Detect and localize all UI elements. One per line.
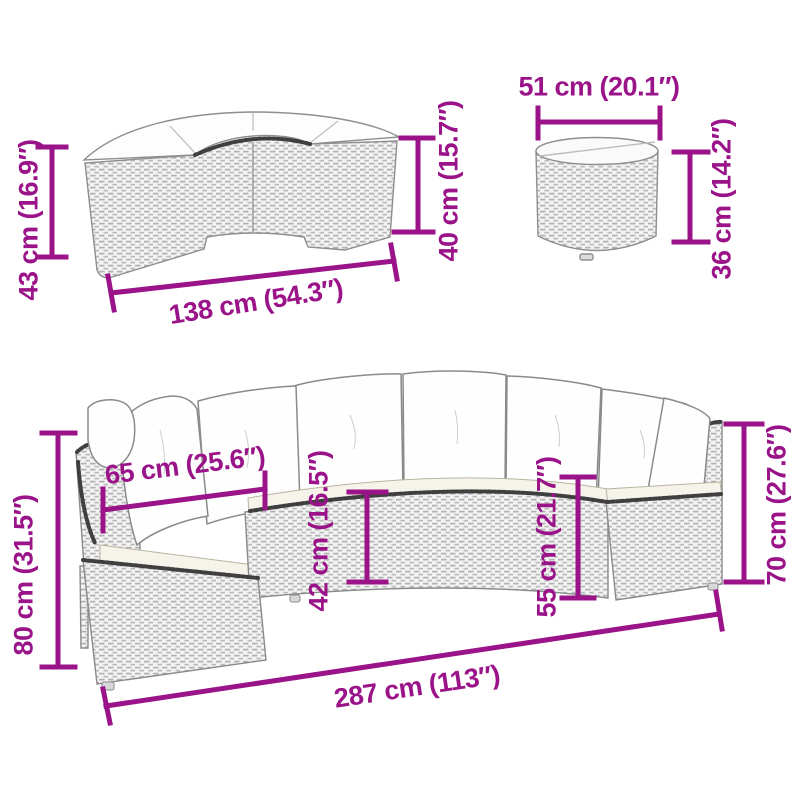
sofa-height-dim-label: 80 cm (31.5″) xyxy=(9,494,40,655)
table-height-dim-label: 36 cm (14.2″) xyxy=(707,118,738,279)
sofa-foot xyxy=(708,583,718,590)
sofa-height-dim-line xyxy=(42,433,75,667)
sofa-back-cushion xyxy=(403,371,506,489)
sofa-arm-height-dim-label: 70 cm (27.6″) xyxy=(762,424,793,585)
table-rattan-body xyxy=(536,151,658,251)
bench-seat-height-dim-label: 40 cm (15.7″) xyxy=(434,100,465,261)
table-diameter-dim-line xyxy=(538,108,660,138)
table-foot xyxy=(580,254,593,260)
sofa-foot xyxy=(290,595,300,602)
sofa-back-seat-height-dim-label: 55 cm (21.7″) xyxy=(532,456,563,617)
sofa-front-panel-right xyxy=(606,494,722,600)
diagram-canvas: 43 cm (16.9″) 138 cm (54.3″) 40 cm (15.7… xyxy=(0,0,800,800)
sofa-arm-height-dim-line xyxy=(726,424,762,582)
table-drawing xyxy=(536,138,658,261)
table-height-dim-line xyxy=(674,152,708,242)
table-diameter-dim-label: 51 cm (20.1″) xyxy=(518,72,679,103)
bench-height-dim-label: 43 cm (16.9″) xyxy=(14,139,45,300)
sofa-drawing xyxy=(76,371,722,690)
bench-drawing xyxy=(84,112,399,278)
table-top xyxy=(536,138,658,165)
bench-seat-height-dim-line xyxy=(394,138,433,232)
sofa-front-panel-left xyxy=(83,560,266,684)
sofa-seat-front-height-dim-label: 42 cm (16.5″) xyxy=(304,450,335,611)
bench-rattan-body xyxy=(85,138,397,278)
